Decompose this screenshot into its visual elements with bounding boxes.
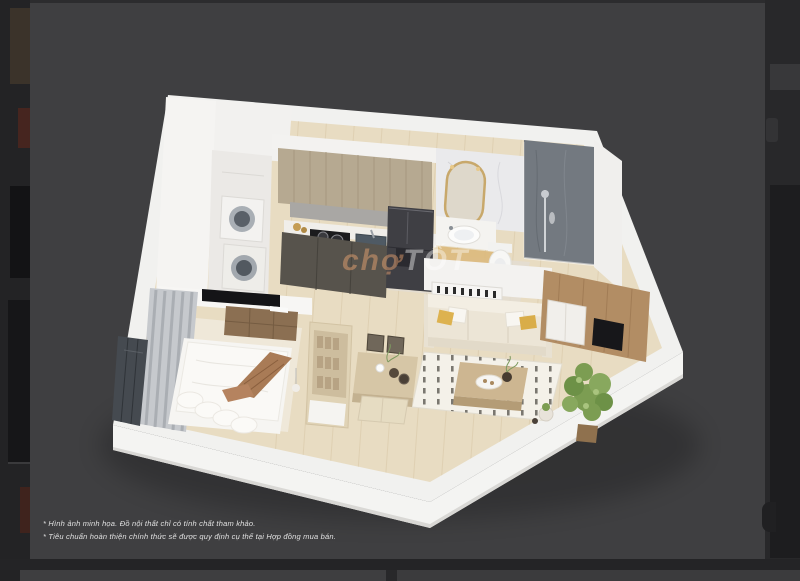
cooktop bbox=[310, 229, 350, 248]
backsplash bbox=[290, 202, 432, 231]
carousel-left-edge bbox=[0, 0, 30, 581]
bedroom bbox=[112, 286, 312, 434]
next-photo-thumb[interactable] bbox=[770, 64, 800, 90]
watermark-prefix: chợ bbox=[342, 244, 403, 277]
prev-photo-thumb[interactable] bbox=[10, 186, 30, 278]
living-room bbox=[412, 258, 650, 443]
vanity-light bbox=[438, 246, 494, 267]
prev-photo-thumb[interactable] bbox=[20, 487, 30, 533]
wash-basin bbox=[448, 226, 480, 244]
watermark-suffix: TỐT bbox=[403, 244, 469, 277]
apartment-3d-render bbox=[30, 3, 765, 559]
marble-wall bbox=[436, 148, 532, 233]
kitchen-sink bbox=[356, 234, 386, 252]
tv-screen bbox=[592, 318, 624, 351]
next-row-photo-right[interactable] bbox=[397, 570, 800, 581]
dining-table bbox=[352, 344, 418, 407]
dining-chairs bbox=[367, 334, 404, 354]
right-edge-notch bbox=[762, 502, 776, 532]
vanity-counter bbox=[436, 216, 496, 251]
prev-photo-thumb[interactable] bbox=[10, 8, 30, 84]
accent-pillow bbox=[519, 315, 537, 330]
prev-photo-thumb[interactable] bbox=[18, 108, 30, 148]
dryer-door bbox=[231, 255, 257, 281]
refrigerator bbox=[386, 206, 434, 292]
interior-wall-faces bbox=[156, 97, 292, 300]
shelf-unit bbox=[306, 322, 352, 428]
outer-walls bbox=[113, 95, 683, 528]
render-shadow bbox=[100, 370, 700, 520]
side-stool bbox=[539, 407, 553, 421]
bed-throw bbox=[232, 352, 292, 398]
floor bbox=[132, 100, 662, 500]
washer-door bbox=[229, 206, 255, 232]
gallery-viewer: chợTỐT * Hình ảnh minh họa. Đồ nội thất … bbox=[0, 0, 800, 581]
vanity-mirror bbox=[444, 161, 486, 227]
main-photo-floorplan[interactable]: chợTỐT * Hình ảnh minh họa. Đồ nội thất … bbox=[30, 3, 765, 559]
next-row-photo-left[interactable] bbox=[20, 570, 386, 581]
lower-cabinets bbox=[280, 232, 388, 298]
curtains bbox=[140, 288, 198, 432]
laundry-closet bbox=[208, 150, 272, 300]
tv-media-wall bbox=[540, 270, 650, 362]
bench bbox=[358, 396, 408, 424]
bathroom bbox=[436, 140, 622, 292]
countertop bbox=[284, 220, 436, 247]
dresser bbox=[224, 306, 298, 341]
toilet bbox=[488, 249, 512, 278]
disclaimer-line-2: * Tiêu chuẩn hoàn thiện chính thức sẽ đư… bbox=[43, 531, 743, 543]
bed bbox=[168, 338, 292, 434]
potted-plant bbox=[562, 363, 613, 443]
coffee-table bbox=[453, 356, 528, 411]
row-gap bbox=[0, 559, 800, 570]
upper-cabinets bbox=[278, 148, 432, 217]
kitchen bbox=[272, 134, 436, 298]
carousel-right-edge bbox=[765, 0, 800, 581]
disclaimer-line-1: * Hình ảnh minh họa. Đồ nội thất chỉ có … bbox=[43, 518, 743, 530]
dining-area bbox=[306, 322, 418, 428]
sofa bbox=[424, 294, 552, 358]
chotot-watermark: chợTỐT bbox=[342, 244, 469, 278]
pendant-lamp bbox=[292, 384, 300, 392]
wall-tv bbox=[202, 289, 280, 307]
next-photo-thumb[interactable] bbox=[766, 118, 778, 142]
accent-pillow bbox=[437, 310, 454, 326]
shower-marble-wall bbox=[524, 140, 594, 265]
wall-art-strip bbox=[432, 282, 502, 300]
prev-photo-thumb[interactable] bbox=[8, 300, 30, 464]
rug bbox=[412, 352, 562, 421]
window bbox=[112, 336, 148, 426]
